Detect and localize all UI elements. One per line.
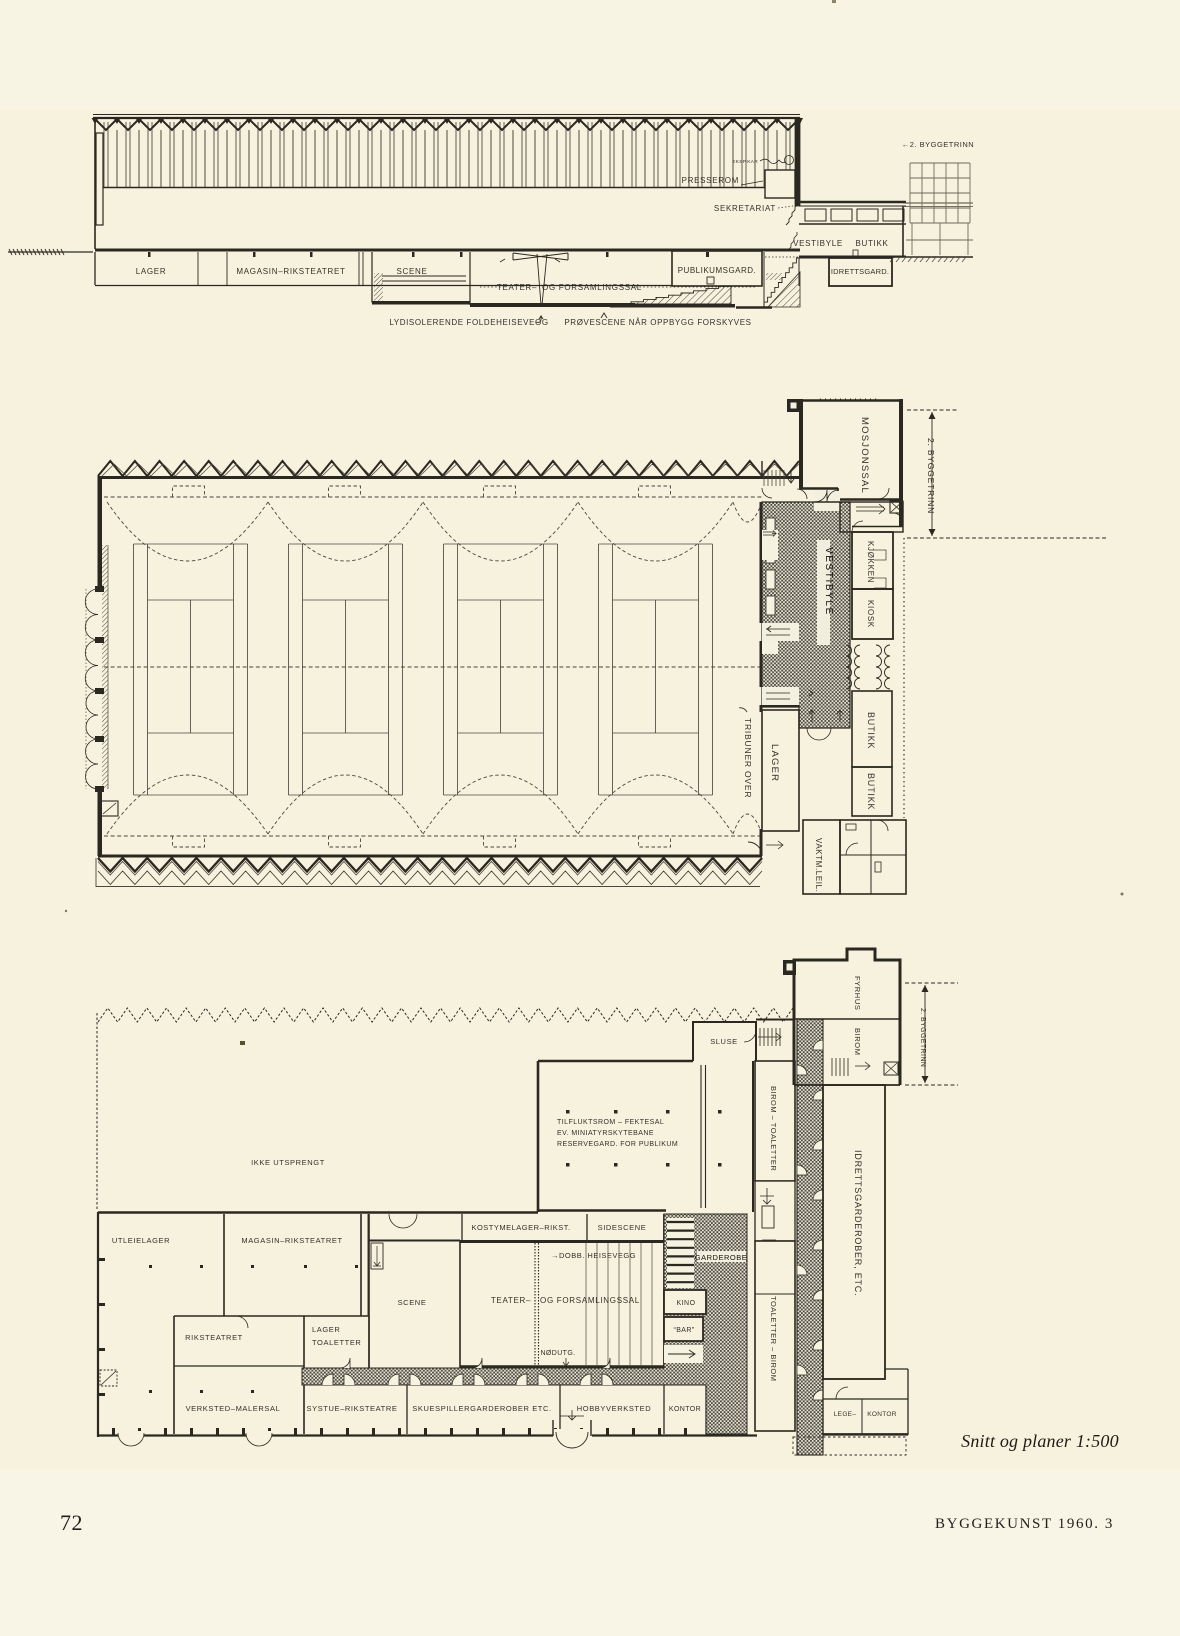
svg-text:SLUSE: SLUSE bbox=[710, 1037, 738, 1046]
svg-text:TRIBUNER OVER: TRIBUNER OVER bbox=[743, 718, 753, 798]
svg-text:KJØKKEN: KJØKKEN bbox=[866, 541, 875, 583]
svg-text:2. BYGGETRINN: 2. BYGGETRINN bbox=[919, 1008, 926, 1067]
svg-text:UTLEIELAGER: UTLEIELAGER bbox=[112, 1236, 170, 1245]
svg-text:BYGGEKUNST 1960. 3: BYGGEKUNST 1960. 3 bbox=[935, 1516, 1114, 1532]
svg-text:BUTIKK: BUTIKK bbox=[866, 773, 876, 810]
svg-text:KOSTYMELAGER–RIKST.: KOSTYMELAGER–RIKST. bbox=[471, 1223, 570, 1232]
svg-text:LAGER: LAGER bbox=[136, 267, 167, 276]
svg-text:VAKTM.LEIL.: VAKTM.LEIL. bbox=[814, 838, 823, 892]
svg-text:2. BYGGETRINN: 2. BYGGETRINN bbox=[926, 438, 936, 514]
svg-text:PUBLIKUMSGARD.: PUBLIKUMSGARD. bbox=[678, 266, 757, 275]
svg-text:IKKE UTSPRENGT: IKKE UTSPRENGT bbox=[251, 1158, 325, 1167]
svg-text:←2. BYGGETRINN: ←2. BYGGETRINN bbox=[902, 140, 974, 149]
svg-text:LAGER: LAGER bbox=[769, 744, 780, 782]
svg-text:TOALETTER: TOALETTER bbox=[312, 1338, 361, 1347]
svg-text:VESTIBYLE: VESTIBYLE bbox=[823, 547, 834, 616]
svg-text:OG FORSAMLINGSSAL: OG FORSAMLINGSSAL bbox=[540, 1296, 640, 1305]
svg-text:NØDUTG.: NØDUTG. bbox=[540, 1350, 575, 1357]
svg-text:BUTIKK: BUTIKK bbox=[855, 239, 888, 248]
svg-text:EKSP.KAR: EKSP.KAR bbox=[732, 159, 758, 165]
svg-text:“BAR”: “BAR” bbox=[673, 1327, 694, 1334]
svg-text:SCENE: SCENE bbox=[396, 267, 427, 276]
svg-text:Snitt og planer 1:500: Snitt og planer 1:500 bbox=[961, 1431, 1119, 1451]
svg-text:FYRHUS: FYRHUS bbox=[853, 976, 862, 1010]
svg-text:IDRETTSGARDEROBER, ETC.: IDRETTSGARDEROBER, ETC. bbox=[853, 1150, 863, 1296]
svg-text:OG FORSAMLINGSSAL: OG FORSAMLINGSSAL bbox=[542, 283, 642, 292]
svg-text:MOSJONSSAL: MOSJONSSAL bbox=[859, 417, 870, 494]
svg-text:LEGE–: LEGE– bbox=[834, 1411, 857, 1418]
svg-text:LAGER: LAGER bbox=[312, 1325, 340, 1334]
svg-text:KONTOR: KONTOR bbox=[867, 1411, 897, 1418]
svg-text:→DOBB. HEISEVEGG: →DOBB. HEISEVEGG bbox=[551, 1251, 636, 1260]
svg-text:TILFLUKTSROM – FEKTESAL: TILFLUKTSROM – FEKTESAL bbox=[557, 1119, 664, 1126]
svg-text:PRESSEROM: PRESSEROM bbox=[682, 176, 739, 185]
svg-text:BUTIKK: BUTIKK bbox=[866, 712, 876, 749]
svg-text:HOBBYVERKSTED: HOBBYVERKSTED bbox=[577, 1404, 651, 1413]
svg-text:72: 72 bbox=[60, 1510, 83, 1535]
svg-text:KONTOR: KONTOR bbox=[669, 1406, 701, 1413]
svg-text:KINO: KINO bbox=[676, 1300, 695, 1307]
svg-text:RESERVEGARD. FOR PUBLIKUM: RESERVEGARD. FOR PUBLIKUM bbox=[557, 1141, 678, 1148]
svg-text:BIROM – TOALETTER: BIROM – TOALETTER bbox=[769, 1086, 778, 1171]
svg-text:SKUESPILLERGARDEROBER ETC.: SKUESPILLERGARDEROBER ETC. bbox=[412, 1404, 551, 1413]
svg-text:SEKRETARIAT: SEKRETARIAT bbox=[714, 204, 776, 213]
svg-text:TEATER–: TEATER– bbox=[491, 1296, 531, 1305]
svg-text:SIDESCENE: SIDESCENE bbox=[598, 1223, 647, 1232]
svg-text:KIOSK: KIOSK bbox=[866, 600, 875, 628]
svg-text:SYSTUE–RIKSTEATRE: SYSTUE–RIKSTEATRE bbox=[307, 1404, 398, 1413]
svg-text:EV. MINIATYRSKYTEBANE: EV. MINIATYRSKYTEBANE bbox=[557, 1130, 654, 1137]
svg-text:VERKSTED–MALERSAL: VERKSTED–MALERSAL bbox=[186, 1404, 281, 1413]
svg-text:SCENE: SCENE bbox=[398, 1298, 427, 1307]
svg-text:GARDEROBE: GARDEROBE bbox=[695, 1253, 747, 1262]
svg-text:TOALETTER – BIROM: TOALETTER – BIROM bbox=[769, 1296, 778, 1381]
svg-text:MAGASIN–RIKSTEATRET: MAGASIN–RIKSTEATRET bbox=[241, 1236, 342, 1245]
svg-text:VESTIBYLE: VESTIBYLE bbox=[793, 239, 843, 248]
svg-text:MAGASIN–RIKSTEATRET: MAGASIN–RIKSTEATRET bbox=[236, 267, 345, 276]
svg-text:BIROM: BIROM bbox=[853, 1028, 862, 1056]
svg-text:PRØVESCENE NÅR OPPBYGG FORSKYV: PRØVESCENE NÅR OPPBYGG FORSKYVES bbox=[564, 318, 751, 327]
svg-text:IDRETTSGARD.: IDRETTSGARD. bbox=[831, 267, 889, 276]
svg-text:TEATER–: TEATER– bbox=[497, 283, 537, 292]
svg-text:RIKSTEATRET: RIKSTEATRET bbox=[185, 1333, 243, 1342]
svg-text:LYDISOLERENDE FOLDEHEISEVEGG: LYDISOLERENDE FOLDEHEISEVEGG bbox=[389, 318, 548, 327]
